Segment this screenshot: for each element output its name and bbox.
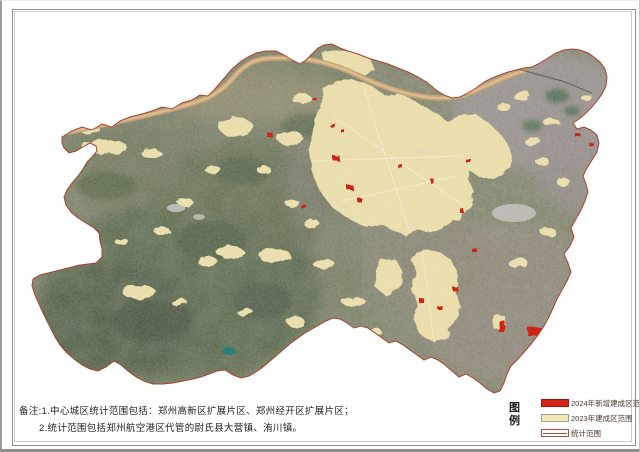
legend-label-boundary: 统计范围	[571, 428, 601, 439]
map-terrain	[15, 12, 631, 441]
map-frame-inner: 备注:1.中心城区统计范围包括：郑州高新区扩展片区、郑州经开区扩展片区； 2.统…	[14, 11, 632, 442]
legend-item-boundary: 统计范围	[541, 428, 640, 438]
map-notes: 备注:1.中心城区统计范围包括：郑州高新区扩展片区、郑州经开区扩展片区； 2.统…	[19, 403, 354, 437]
map-legend: 图例 2024年新增建成区范围 2023年建成区范围 统计范围	[509, 398, 640, 438]
figure-page: 备注:1.中心城区统计范围包括：郑州高新区扩展片区、郑州经开区扩展片区； 2.统…	[0, 0, 640, 452]
reservoir	[222, 347, 236, 355]
note-line-1: 备注:1.中心城区统计范围包括：郑州高新区扩展片区、郑州经开区扩展片区；	[19, 403, 354, 420]
legend-item-2023: 2023年建成区范围	[541, 413, 640, 423]
legend-swatch-2024-red	[541, 399, 569, 407]
legend-label-2024: 2024年新增建成区范围	[571, 398, 640, 409]
satellite-map	[15, 12, 631, 441]
legend-title: 图例	[509, 402, 522, 438]
legend-items: 2024年新增建成区范围 2023年建成区范围 统计范围	[541, 398, 640, 438]
map-frame: 备注:1.中心城区统计范围包括：郑州高新区扩展片区、郑州经开区扩展片区； 2.统…	[12, 9, 636, 446]
legend-swatch-boundary-line	[541, 429, 569, 437]
legend-swatch-2023-cream	[541, 414, 569, 422]
legend-item-2024: 2024年新增建成区范围	[541, 398, 640, 408]
legend-label-2023: 2023年建成区范围	[571, 413, 633, 424]
note-line-2: 2.统计范围包括郑州航空港区代管的尉氏县大营镇、洧川镇。	[39, 420, 354, 437]
